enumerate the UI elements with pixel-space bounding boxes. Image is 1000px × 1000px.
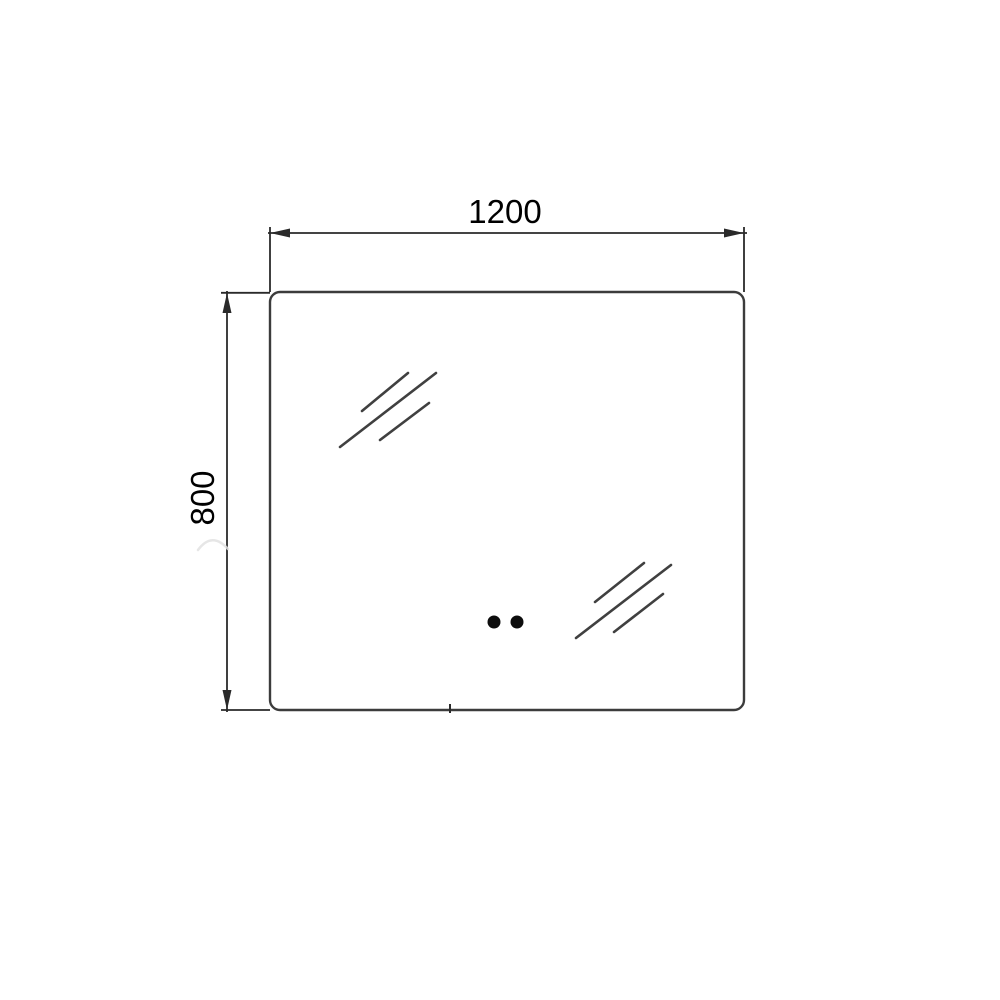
glare-line-short-lower bbox=[380, 403, 429, 440]
glare-line-long bbox=[576, 565, 671, 638]
technical-drawing-canvas: 1200 800 bbox=[0, 0, 1000, 1000]
glare-line-short-lower bbox=[614, 594, 663, 632]
faint-arc-mark bbox=[198, 540, 228, 550]
touch-sensor-dots bbox=[488, 616, 524, 629]
width-arrowhead-left bbox=[270, 229, 290, 238]
glare-line-short-upper bbox=[595, 563, 644, 602]
mirror-dimension-drawing: 1200 800 bbox=[0, 0, 1000, 1000]
touch-sensor-dot-right bbox=[511, 616, 524, 629]
width-arrowhead-right bbox=[724, 229, 744, 238]
glare-hatch-group-upper-left bbox=[340, 373, 436, 447]
glare-hatch-group-lower-right bbox=[576, 563, 671, 638]
glare-line-short-upper bbox=[362, 373, 408, 411]
touch-sensor-dot-left bbox=[488, 616, 501, 629]
height-arrowhead-bottom bbox=[223, 690, 232, 710]
width-dimension-label: 1200 bbox=[468, 193, 541, 230]
mirror-panel-outline bbox=[270, 292, 744, 710]
height-dimension-label: 800 bbox=[184, 470, 221, 525]
height-arrowhead-top bbox=[223, 293, 232, 313]
